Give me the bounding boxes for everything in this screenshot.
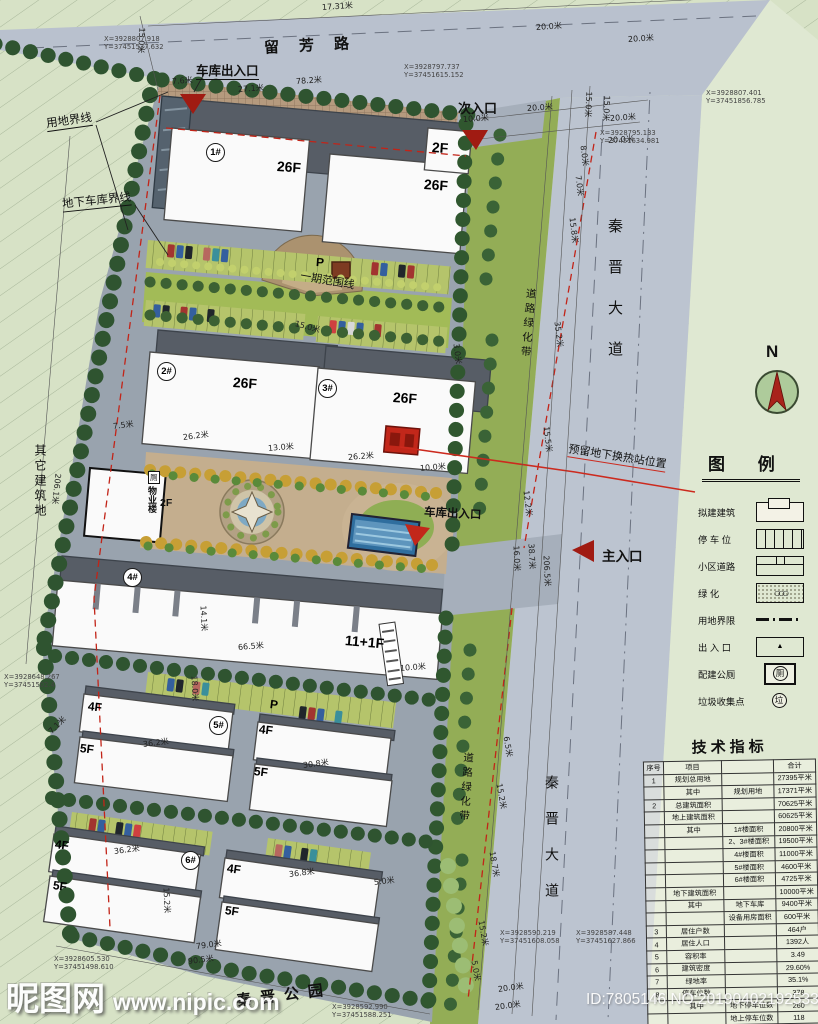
property-building [84, 468, 166, 542]
building-2 [142, 330, 337, 458]
water-pool [348, 514, 420, 556]
building-5-right [249, 714, 395, 826]
central-fountain [220, 480, 284, 544]
red-utility-block [384, 426, 420, 455]
building-5-left [74, 686, 234, 801]
site-plan-canvas: 留芳路 秦晋大道 秦晋大道 道路绿化带 道路绿化带 其它建筑地 秦晋公园 N 用… [0, 0, 818, 1024]
building-3 [310, 346, 491, 473]
site-plan-drawing [0, 0, 818, 1024]
building-6-left [44, 826, 205, 943]
building-6-right [215, 850, 382, 972]
north-arrow [756, 371, 798, 413]
